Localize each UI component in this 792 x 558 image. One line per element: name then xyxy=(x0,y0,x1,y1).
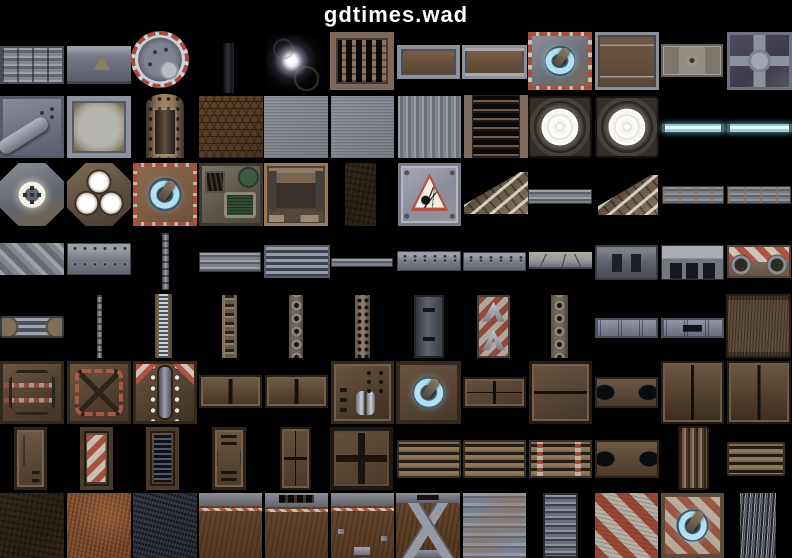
texture-diagonal-plating[interactable] xyxy=(0,243,64,275)
texture-console-screen[interactable] xyxy=(199,163,263,226)
texture-cable-bundle[interactable] xyxy=(740,493,776,558)
texture-twin-column-plate-b[interactable] xyxy=(727,361,791,424)
texture-notched-girder[interactable] xyxy=(529,252,592,269)
wad-viewer-window: gdtimes.wad xyxy=(0,0,792,558)
texture-rust-wall-bracket[interactable] xyxy=(331,493,394,558)
texture-strip-rails[interactable] xyxy=(528,189,592,204)
texture-wall-grate[interactable] xyxy=(330,32,394,90)
texture-mech-door-panel[interactable] xyxy=(133,361,197,424)
texture-slat-band-b[interactable] xyxy=(463,440,526,478)
texture-hazard-gear-band[interactable] xyxy=(727,245,791,278)
texture-dark-speckle[interactable] xyxy=(133,493,197,558)
texture-slat-band-c[interactable] xyxy=(727,442,785,476)
texture-stair-edge-small[interactable] xyxy=(464,172,528,214)
texture-double-plate-b[interactable] xyxy=(265,375,328,408)
texture-power-panel-gray[interactable] xyxy=(528,32,592,90)
texture-brown-cross-panel[interactable] xyxy=(67,361,131,424)
texture-thin-ledge[interactable] xyxy=(331,258,393,267)
texture-light-strip-b[interactable] xyxy=(727,124,792,132)
texture-slotted-rail[interactable] xyxy=(397,251,461,271)
texture-pipe-rail[interactable] xyxy=(463,252,526,271)
texture-blue-corrugated[interactable] xyxy=(463,493,526,558)
texture-gray-plate-b[interactable] xyxy=(331,96,394,158)
texture-gray-plate-a[interactable] xyxy=(264,96,328,158)
texture-vent-door[interactable] xyxy=(146,427,179,490)
texture-rust-dirt[interactable] xyxy=(67,493,131,558)
texture-plaster-plate[interactable] xyxy=(67,96,131,158)
texture-pipe-coupling[interactable] xyxy=(0,316,64,338)
texture-hazard-arrow-column[interactable] xyxy=(477,295,510,358)
texture-rivet-girder[interactable] xyxy=(67,243,131,275)
texture-explosive-sign[interactable] xyxy=(398,163,461,226)
texture-stair-steps[interactable] xyxy=(598,175,658,215)
texture-banded-column[interactable] xyxy=(543,493,578,558)
texture-slot-girder[interactable] xyxy=(595,245,658,280)
texture-split-plate[interactable] xyxy=(529,361,592,424)
texture-dark-rock[interactable] xyxy=(345,163,376,226)
texture-twin-column-plate-a[interactable] xyxy=(661,361,724,424)
texture-slotted-girder-blue[interactable] xyxy=(661,318,724,338)
texture-oval-vent-band-b[interactable] xyxy=(595,440,659,478)
texture-rust-wall-vent[interactable] xyxy=(265,493,328,558)
texture-oval-vent-band-a[interactable] xyxy=(595,377,658,408)
texture-dotted-strut[interactable] xyxy=(355,295,370,358)
texture-coil-strut[interactable] xyxy=(155,294,172,358)
texture-girder-band-a[interactable] xyxy=(662,186,724,204)
texture-rivet-plate-small[interactable] xyxy=(661,44,723,77)
texture-lens-flare[interactable] xyxy=(266,35,324,91)
texture-pipe-panel[interactable] xyxy=(0,96,64,158)
texture-dark-strip[interactable] xyxy=(223,43,234,93)
texture-ribbed-metal[interactable] xyxy=(0,46,64,84)
texture-bolted-quad-plate[interactable] xyxy=(330,427,393,490)
texture-truss-wall[interactable] xyxy=(396,493,460,558)
texture-rust-plate[interactable] xyxy=(397,45,460,79)
texture-warning-band[interactable] xyxy=(67,46,131,84)
texture-rust-wall-girder[interactable] xyxy=(199,493,262,558)
texture-thin-chain[interactable] xyxy=(97,295,102,358)
texture-tech-pillar[interactable] xyxy=(133,92,197,158)
texture-socket-strut[interactable] xyxy=(289,295,303,358)
texture-power-panel-hazard[interactable] xyxy=(661,493,724,558)
texture-ring-column[interactable] xyxy=(551,295,568,358)
texture-octagon-ring-light[interactable] xyxy=(0,163,64,226)
texture-dark-dirt[interactable] xyxy=(0,493,64,558)
texture-hazard-stripes[interactable] xyxy=(595,493,658,558)
texture-rail-strip[interactable] xyxy=(199,252,261,272)
texture-support-pole[interactable] xyxy=(162,233,169,290)
texture-power-panel-rust[interactable] xyxy=(133,163,197,226)
texture-octagon-triple-light[interactable] xyxy=(67,163,131,226)
texture-alcove-panel[interactable] xyxy=(264,163,328,226)
texture-power-panel-brown[interactable] xyxy=(396,361,461,424)
texture-brown-octagon-panel[interactable] xyxy=(0,361,64,424)
texture-double-plate-a[interactable] xyxy=(199,375,262,408)
texture-round-hatch[interactable] xyxy=(131,31,189,88)
texture-hex-mesh[interactable] xyxy=(199,96,263,158)
texture-rough-hide-panel[interactable] xyxy=(726,294,791,358)
texture-quad-plate-door[interactable] xyxy=(280,427,311,490)
texture-narrow-door[interactable] xyxy=(14,427,47,490)
texture-rust-plate-rails[interactable] xyxy=(462,45,527,79)
texture-chain-strut[interactable] xyxy=(222,295,237,358)
texture-flood-light-b[interactable] xyxy=(595,96,659,158)
texture-slat-band-a[interactable] xyxy=(397,440,461,478)
texture-piston-panel[interactable] xyxy=(331,361,394,424)
texture-quad-plate-band[interactable] xyxy=(463,377,526,408)
texture-slotted-column[interactable] xyxy=(414,295,444,358)
texture-corrugated-wall[interactable] xyxy=(398,96,461,158)
texture-hazard-door[interactable] xyxy=(80,427,113,490)
wad-title: gdtimes.wad xyxy=(0,2,792,28)
texture-riveted-girder-blue[interactable] xyxy=(595,318,658,338)
texture-tech-door[interactable] xyxy=(212,427,246,490)
texture-girder-band-b[interactable] xyxy=(727,186,791,204)
texture-rust-door-panel[interactable] xyxy=(595,32,659,90)
texture-cross-brace-panel[interactable] xyxy=(727,32,792,90)
texture-light-strip-a[interactable] xyxy=(662,124,724,132)
texture-grooved-column[interactable] xyxy=(678,426,709,490)
texture-flood-light-a[interactable] xyxy=(528,96,592,158)
texture-ladder-vent[interactable] xyxy=(464,95,528,158)
texture-striped-girder[interactable] xyxy=(264,245,330,278)
texture-cutout-girder[interactable] xyxy=(661,245,724,280)
texture-slat-band-hazard[interactable] xyxy=(529,440,592,478)
